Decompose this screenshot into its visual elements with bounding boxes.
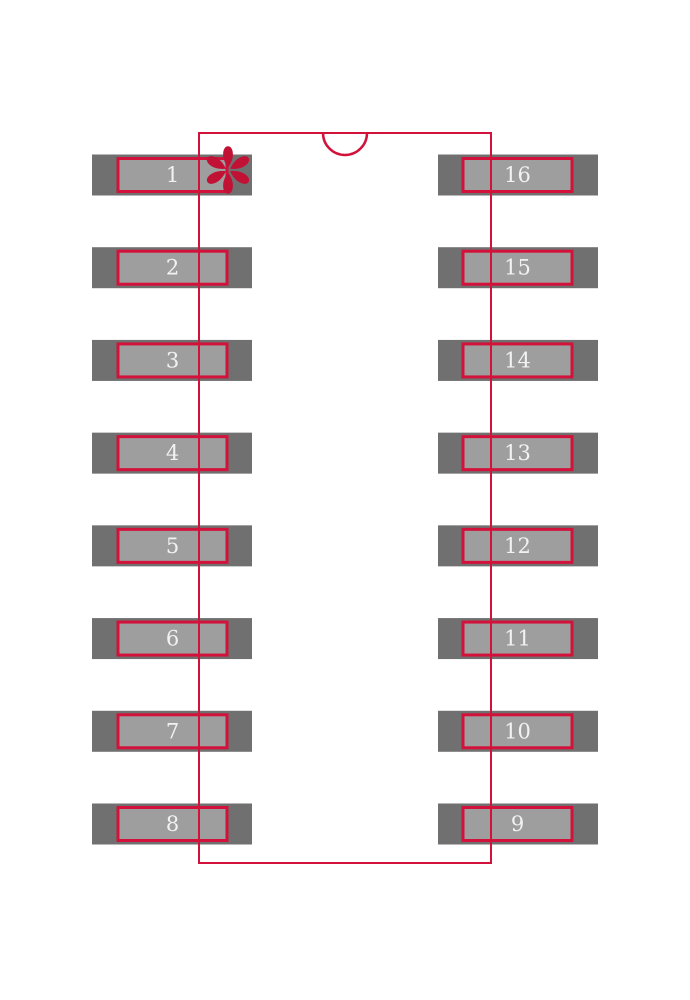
pad-4-number: 4 — [166, 441, 179, 465]
pad-16-number: 16 — [504, 163, 531, 187]
pad-14-number: 14 — [504, 348, 531, 372]
pad-3-number: 3 — [166, 348, 179, 372]
pad-2-number: 2 — [166, 256, 179, 280]
pad-10-number: 10 — [504, 719, 531, 743]
pad-15-number: 15 — [504, 256, 531, 280]
footprint-canvas: 11621531441351261171089 — [0, 0, 690, 1000]
pad-9-number: 9 — [511, 812, 524, 836]
pad-7-number: 7 — [166, 719, 179, 743]
footprint-diagram: 11621531441351261171089 — [0, 0, 690, 1000]
pad-11-number: 11 — [504, 627, 531, 651]
pad-5-number: 5 — [166, 534, 179, 558]
pad-12-number: 12 — [504, 534, 531, 558]
pad-8-number: 8 — [166, 812, 179, 836]
pad-13-number: 13 — [504, 441, 531, 465]
component-body-outline — [199, 133, 491, 863]
orientation-notch — [323, 133, 367, 155]
pad-6-number: 6 — [166, 627, 179, 651]
pad-1-number: 1 — [166, 163, 179, 187]
